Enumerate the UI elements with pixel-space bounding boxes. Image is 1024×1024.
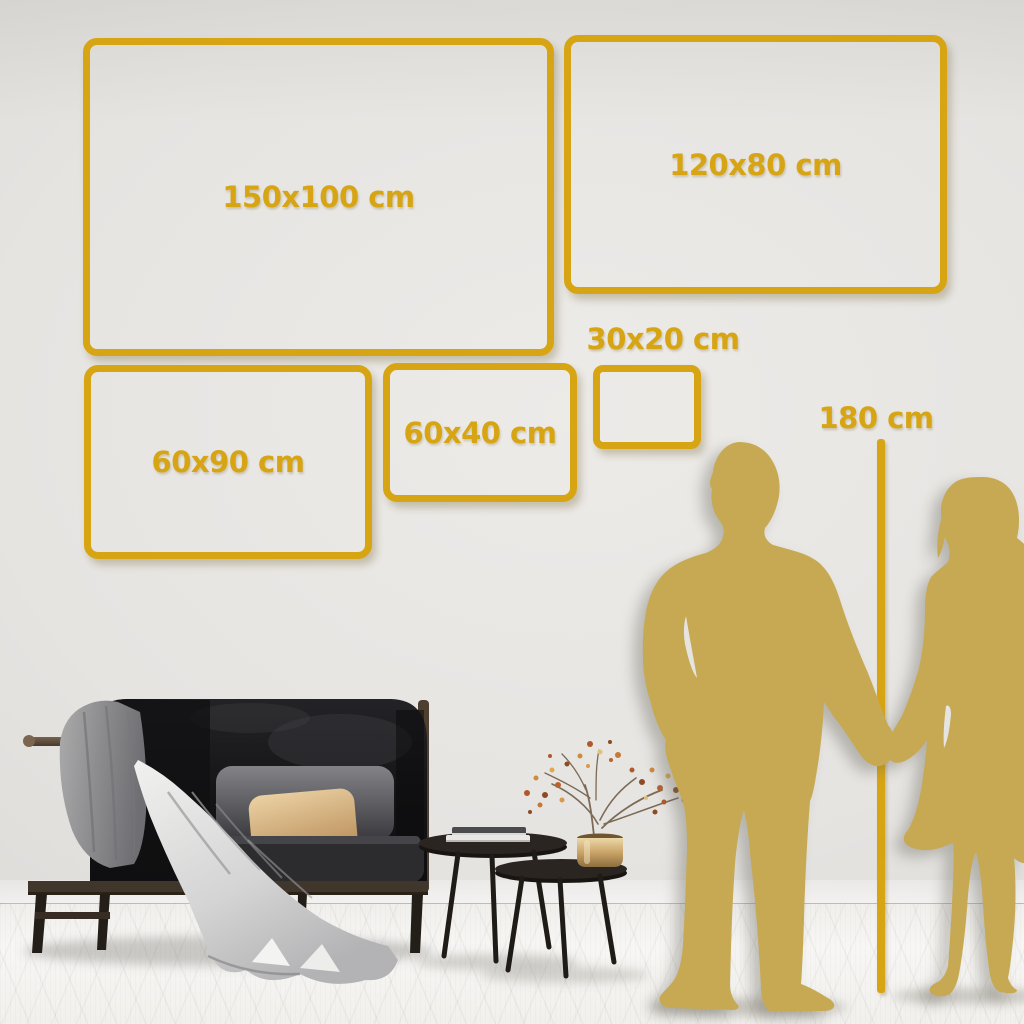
couple-silhouette: [0, 0, 1024, 1024]
size-guide-scene: 150x100 cm 120x80 cm 60x90 cm 60x40 cm 3…: [0, 0, 1024, 1024]
woman-hair-wisp: [937, 512, 946, 558]
man-silhouette: [643, 442, 894, 1011]
woman-silhouette: [886, 477, 1024, 996]
